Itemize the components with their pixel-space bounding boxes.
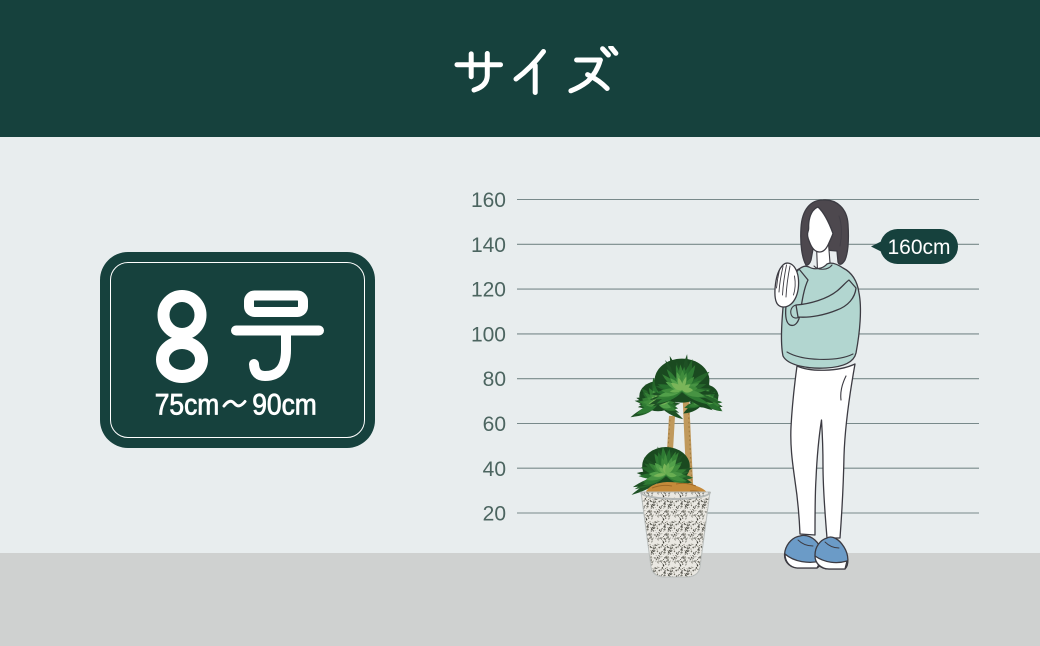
svg-text:120: 120	[471, 279, 506, 302]
svg-text:100: 100	[471, 323, 506, 346]
svg-text:90cm: 90cm	[252, 387, 317, 421]
svg-text:80: 80	[483, 368, 506, 391]
svg-text:20: 20	[483, 503, 506, 525]
svg-text:60: 60	[483, 413, 506, 436]
svg-text:140: 140	[471, 234, 506, 257]
svg-text:160: 160	[471, 189, 506, 212]
svg-text:75cm: 75cm	[155, 387, 220, 421]
svg-text:40: 40	[483, 458, 506, 481]
svg-text:160cm: 160cm	[887, 236, 950, 259]
